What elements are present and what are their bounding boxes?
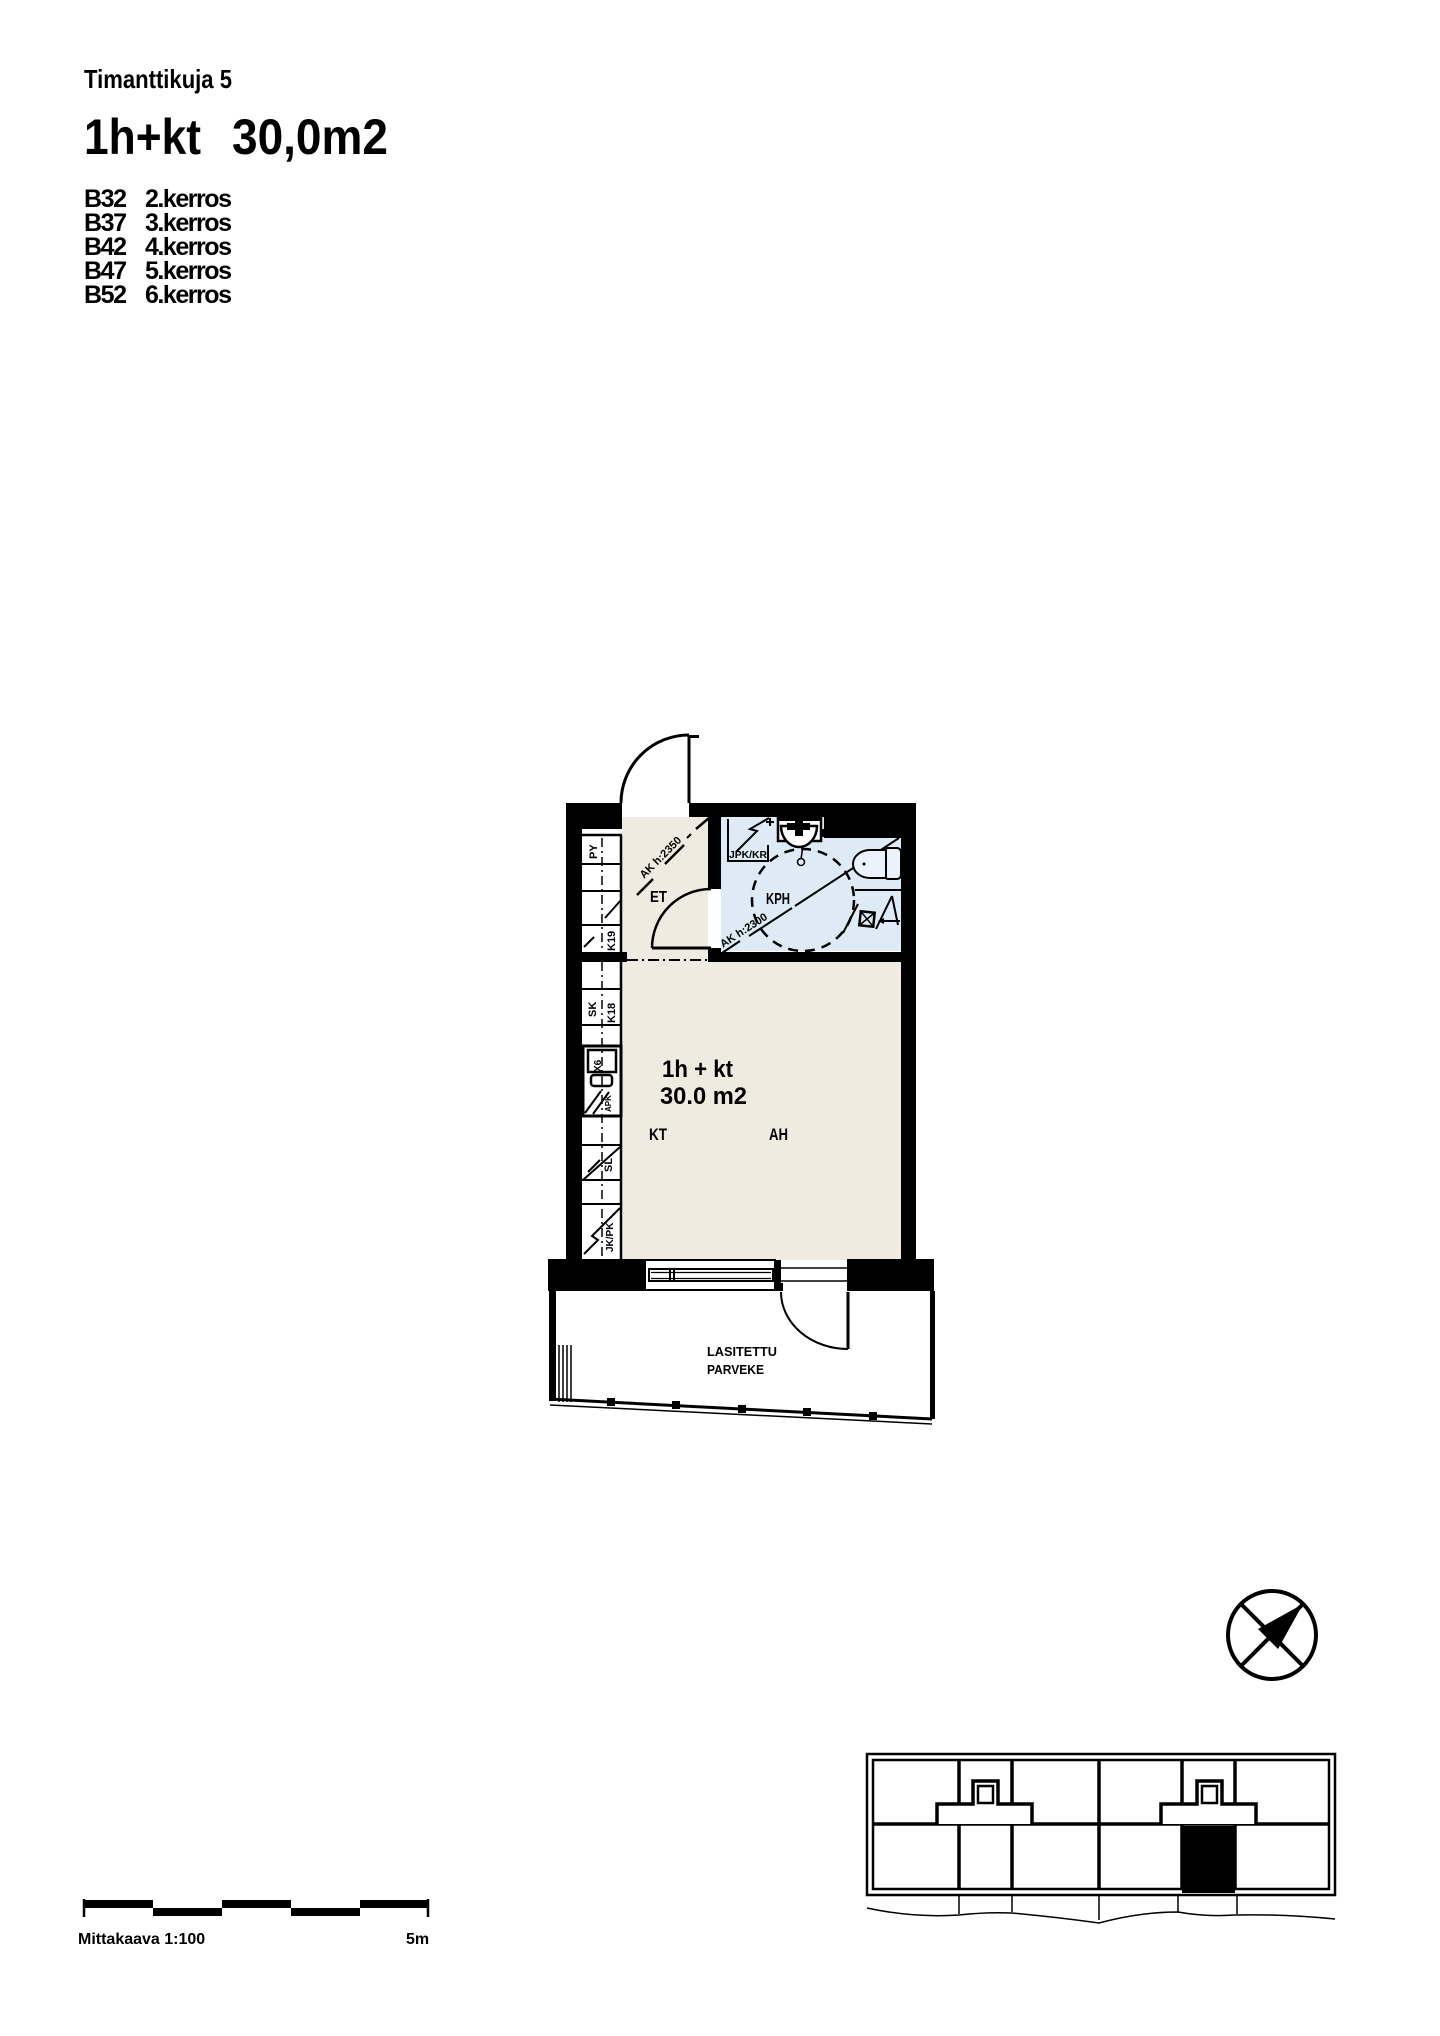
svg-text:1h+kt: 1h+kt xyxy=(84,109,201,165)
svg-text:K18: K18 xyxy=(606,1003,618,1023)
svg-text:KT: KT xyxy=(649,1125,667,1144)
svg-text:1h + kt: 1h + kt xyxy=(662,1056,733,1083)
svg-text:JK/PK: JK/PK xyxy=(605,1222,616,1252)
svg-text:SK: SK xyxy=(587,1002,599,1017)
svg-text:AH: AH xyxy=(769,1125,788,1144)
svg-text:Mittakaava 1:100: Mittakaava 1:100 xyxy=(78,1931,205,1948)
svg-text:PY: PY xyxy=(588,844,600,859)
svg-text:30.0 m2: 30.0 m2 xyxy=(660,1083,747,1110)
svg-text:SL: SL xyxy=(603,1158,615,1172)
svg-text:ET: ET xyxy=(650,889,667,906)
svg-text:LASITETTU: LASITETTU xyxy=(707,1344,777,1359)
svg-text:KPH: KPH xyxy=(766,891,790,908)
svg-text:JPK/KR: JPK/KR xyxy=(729,850,768,861)
svg-text:APK: APK xyxy=(604,1095,613,1112)
svg-text:30,0m2: 30,0m2 xyxy=(232,109,388,165)
svg-text:B52: B52 xyxy=(84,281,127,309)
svg-text:PARVEKE: PARVEKE xyxy=(707,1362,764,1377)
svg-text:6.kerros: 6.kerros xyxy=(145,281,232,309)
svg-text:Timanttikuja 5: Timanttikuja 5 xyxy=(84,64,232,94)
svg-text:5m: 5m xyxy=(406,1931,429,1948)
svg-text:K19: K19 xyxy=(606,931,618,951)
